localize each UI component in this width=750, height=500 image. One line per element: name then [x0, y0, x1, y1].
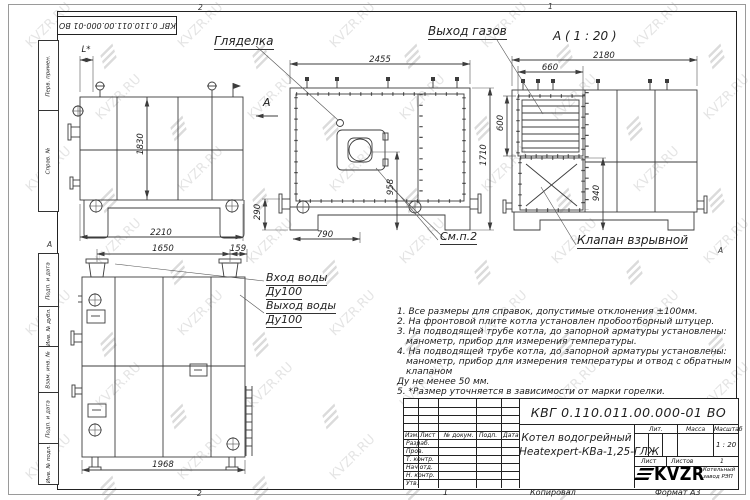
kvzr-logo-text: KVZR [654, 463, 705, 485]
section-arrow-label: А [263, 96, 271, 109]
water-in-label: Вход воды [266, 271, 327, 286]
tb-lit-label: Лит. [649, 426, 663, 433]
view-side [68, 56, 244, 241]
tb-row-nkontr: Н. контр. [406, 472, 435, 479]
view-rear-a [497, 40, 707, 245]
note-line: манометр, прибор для измерения температу… [397, 357, 732, 377]
water-in-dn-label: Ду100 [266, 285, 302, 300]
view-front [256, 46, 494, 243]
note-line: 5. *Размер уточняется в зависимости от м… [397, 387, 732, 397]
tb-col-doc: № докум. [444, 432, 474, 439]
note-line: 4. На подводящей трубе котла, до запорно… [397, 347, 732, 357]
water-out-dn-label: Ду100 [266, 313, 302, 328]
footer-format: Формат А3 [655, 488, 701, 497]
dim-pipe-height: 290 [253, 199, 263, 225]
tb-col-list: Лист [420, 432, 435, 439]
note-line: 2. На фронтовой плите котла установлен п… [397, 317, 732, 327]
dim-front-width: 2455 [360, 55, 400, 65]
dim-plan-w1: 1650 [143, 244, 183, 254]
tb-name-line2: Heatexpert-КВа-1,25-ГЛЖ [519, 446, 634, 458]
dim-side-width: 2210 [141, 228, 181, 238]
dim-plan-w2: 159 [218, 244, 258, 254]
footer-zone-digit: 1 [443, 488, 448, 497]
dim-valve-height: 940 [592, 180, 602, 206]
notes-block: 1. Все размеры для справок, допустимые о… [397, 307, 732, 397]
note-line: 1. Все размеры для справок, допустимые о… [397, 307, 732, 317]
tb-mass-label: Масса [686, 426, 705, 433]
dim-louver-width: 660 [530, 63, 570, 73]
see-item-label: См.п.2 [440, 230, 477, 245]
tb-sheets-value: 1 [720, 458, 724, 465]
tb-row-utv: Утв. [406, 480, 419, 487]
tb-scale-value: 1 : 20 [716, 441, 736, 449]
dim-burner-x: 790 [305, 230, 345, 240]
explosion-valve-label: Клапан взрывной [577, 233, 688, 249]
title-block: Изм. Лист № докум. Подп. Дата Разраб. Пр… [403, 398, 739, 490]
tb-row-tkontr: Т. контр. [406, 456, 434, 463]
tb-scale-label: Масштаб [714, 426, 743, 433]
kvzr-logo-icon [634, 468, 655, 481]
tb-col-data: Дата [503, 432, 519, 439]
drawing-sheet: KVZR.RUKVZR.RUKVZR.RUKVZR.RUKVZR.RUKVZR.… [0, 0, 750, 500]
tb-doc-number: КВГ 0.110.011.00.000-01 ВО [519, 405, 738, 420]
note-line: 3. На подводящей трубе котла, до запорно… [397, 327, 732, 337]
view-plan [71, 249, 264, 474]
dim-rear-width: 2180 [584, 51, 624, 61]
dim-louver-height: 600 [496, 110, 506, 136]
tb-row-razrab: Разраб. [406, 440, 430, 447]
tb-col-podp: Подп. [479, 432, 497, 439]
view-a-title: А ( 1 : 20 ) [553, 29, 617, 43]
dim-plan-width: 1968 [143, 460, 183, 470]
dim-side-height: 1830 [136, 131, 146, 157]
tb-col-izm: Изм. [405, 432, 419, 439]
water-out-label: Выход воды [266, 299, 336, 314]
note-line: манометр, прибор для измерения температу… [397, 337, 732, 347]
tb-row-nachotd: Нач.отд. [406, 464, 433, 471]
dim-side-l: L* [66, 45, 106, 55]
tb-row-prov: Пров. [406, 448, 423, 455]
footer-copied: Копировал [530, 488, 576, 497]
dim-burner-height: 958 [386, 174, 396, 200]
tb-name-line1: Котел водогрейный [519, 432, 634, 444]
dim-front-height: 1710 [479, 142, 489, 168]
gas-outlet-label: Выход газов [428, 24, 507, 40]
sight-glass-label: Гляделка [214, 34, 274, 50]
kvzr-logo-subtext: Котельный завод РЭП [703, 467, 735, 480]
note-line: Ду не менее 50 мм. [397, 377, 732, 387]
